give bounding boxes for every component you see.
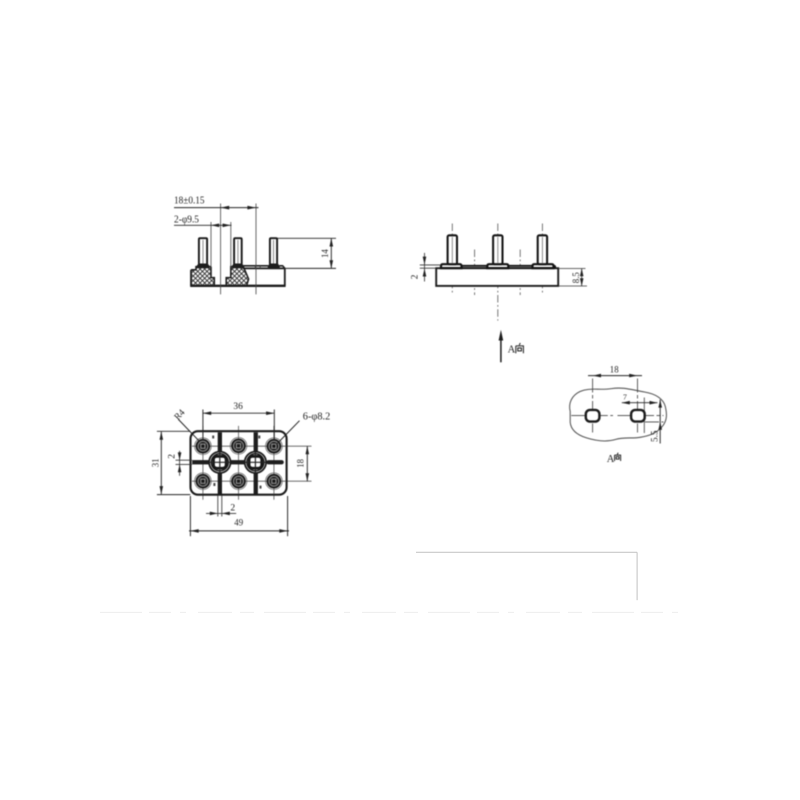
svg-text:36: 36 [233,401,243,412]
svg-text:2: 2 [230,503,235,514]
svg-text:49: 49 [234,518,243,529]
svg-text:14: 14 [320,249,331,258]
svg-text:R4: R4 [173,408,188,423]
svg-text:2: 2 [167,454,177,459]
svg-text:2: 2 [410,274,420,279]
svg-text:A: A [607,454,615,465]
svg-text:2-φ9.5: 2-φ9.5 [174,215,199,226]
svg-text:A: A [508,344,516,355]
svg-text:18: 18 [295,459,306,468]
svg-text:31: 31 [151,458,162,467]
svg-text:6-φ8.2: 6-φ8.2 [303,412,331,423]
svg-text:8.5: 8.5 [572,272,582,283]
svg-text:7: 7 [623,393,627,402]
svg-text:5.5: 5.5 [649,430,659,442]
svg-text:18±0.15: 18±0.15 [174,196,205,207]
svg-text:18: 18 [610,365,619,376]
